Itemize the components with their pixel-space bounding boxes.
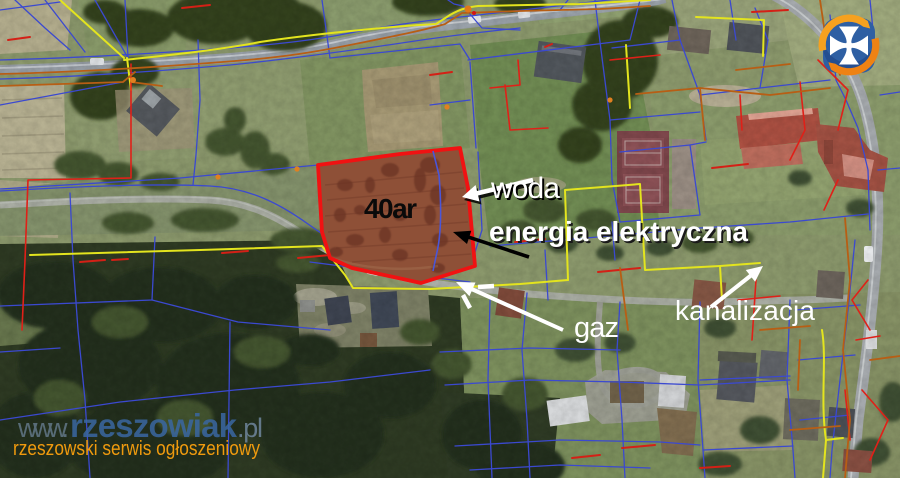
svg-text:gaz: gaz <box>574 312 619 344</box>
svg-text:energia elektryczna: energia elektryczna <box>489 216 748 247</box>
svg-text:40ar: 40ar <box>364 193 417 224</box>
svg-text:kanalizacja: kanalizacja <box>675 295 815 326</box>
svg-text:rzeszowski serwis ogłoszeniowy: rzeszowski serwis ogłoszeniowy <box>13 438 260 460</box>
svg-text:woda: woda <box>490 172 560 205</box>
